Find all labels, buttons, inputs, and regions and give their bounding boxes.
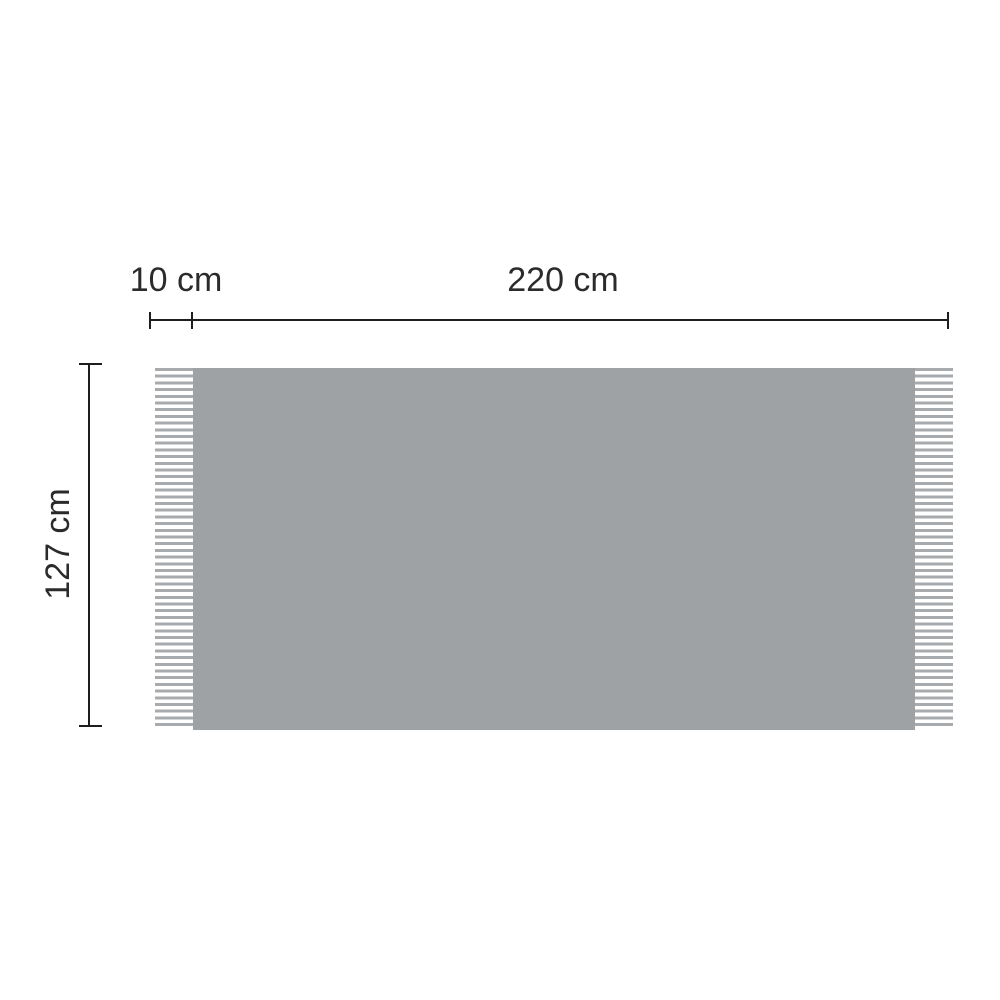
height-label: 127 cm [41, 488, 75, 600]
vertical-tick-bottom [79, 725, 102, 727]
blanket-fringe-right [915, 368, 953, 730]
blanket-fringe-left [155, 368, 193, 730]
vertical-tick-top [79, 363, 102, 365]
blanket-body [193, 368, 915, 730]
vertical-dimension-line [88, 364, 90, 727]
fringe-width-label: 10 cm [130, 263, 223, 297]
horizontal-dimension-line [150, 319, 949, 321]
dimension-diagram: 10 cm 220 cm 127 cm [0, 0, 1000, 1000]
horizontal-tick-right [947, 312, 949, 329]
body-width-label: 220 cm [507, 263, 619, 297]
horizontal-tick-fringe-boundary [191, 312, 193, 329]
horizontal-tick-left [149, 312, 151, 329]
